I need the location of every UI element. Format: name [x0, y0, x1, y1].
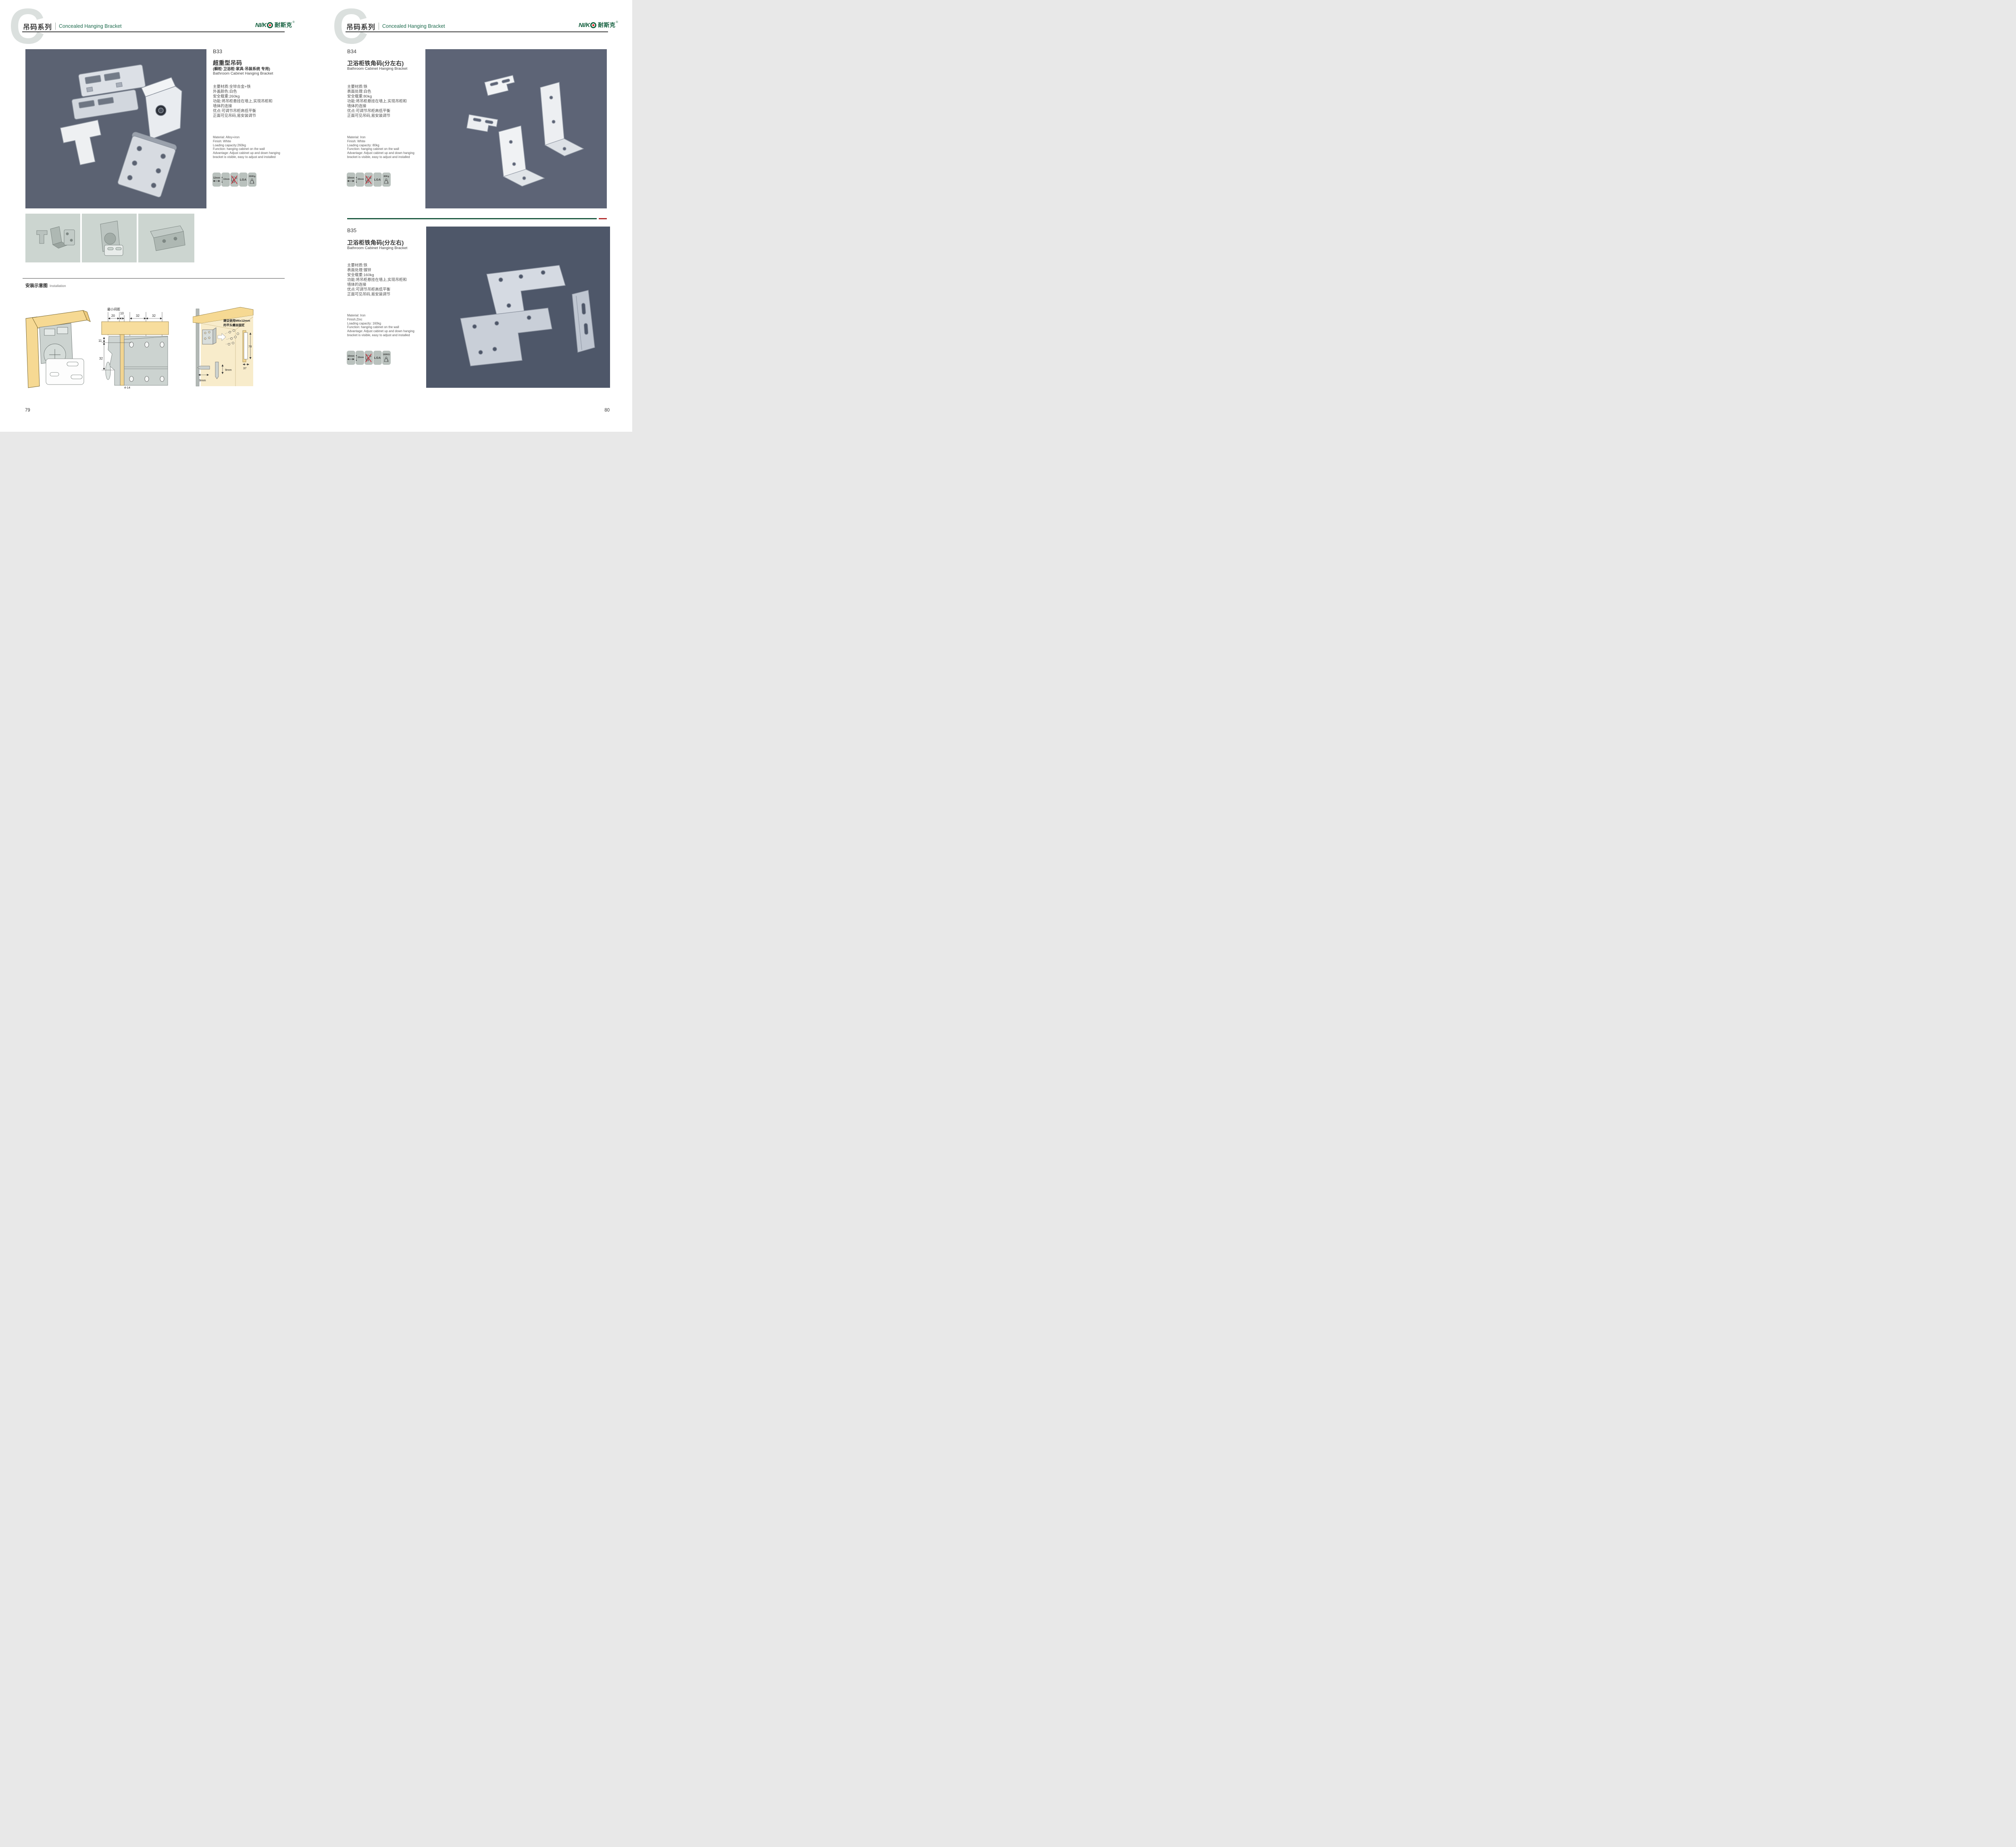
dim-4-14: 4-14 [124, 386, 130, 389]
installation-header: 安装示意图Installation [25, 282, 66, 289]
logo-red-dot-icon [269, 24, 271, 26]
product-photo-b35 [426, 227, 610, 388]
product-name-en-b35: Bathroom Cabinet Hanging Bracket [347, 246, 407, 250]
section-divider-green [347, 218, 597, 219]
dim-9mm-v: 9mm [225, 368, 232, 372]
brand-logo: NI/K 耐斯克 ® [255, 21, 295, 29]
logo-text-k: K [262, 22, 267, 29]
vertical-arrow-icon [221, 175, 223, 185]
installation-diagram-cabinet: 建议使用M6x12mm 的平头螺丝固定 [193, 306, 254, 391]
series-divider [55, 23, 56, 30]
logo-cn: 耐斯克 [598, 21, 616, 29]
header-rule [346, 31, 608, 32]
dim-20: 20 [111, 314, 115, 318]
horizontal-arrow-icon [213, 180, 220, 182]
h-range-icon: 12mm [212, 173, 221, 187]
series-title-en: Concealed Hanging Bracket [59, 23, 122, 29]
dim-11: 11 [98, 339, 102, 343]
thumbnail-2-b33 [82, 214, 137, 262]
product-photo-b33 [25, 49, 206, 208]
product-code-b35: B35 [347, 227, 356, 233]
installation-rule [23, 278, 285, 279]
page-number-right: 80 [602, 408, 610, 413]
logo-o-ring-icon [590, 22, 596, 28]
section-divider-red [599, 218, 607, 219]
note-screw-size: 建议使用M6x12mm [223, 318, 250, 322]
logo-o-ring-icon [267, 22, 273, 28]
product-code-b34: B34 [347, 48, 356, 54]
v-range-icon: 15mm [356, 351, 364, 365]
logo-text: NI [255, 22, 261, 29]
dim-78: 78 [248, 345, 252, 348]
no-drill-icon [230, 173, 239, 187]
feature-icons-b34: 10mm 15mm LGA 80Kg [347, 173, 391, 187]
series-title-cn: 吊码系列 [23, 21, 52, 31]
logo-red-dot-icon [592, 24, 594, 26]
feature-icons-b35: 10mm 15mm LGA 160KG [347, 351, 391, 365]
cert-icon: LGA [373, 351, 382, 365]
logo-text: NI [579, 22, 584, 29]
feature-icons-b33: 12mm 13mm LGA 260Kg [212, 173, 256, 187]
product-code-b33: B33 [213, 48, 222, 54]
weight-icon: 80Kg [382, 173, 391, 187]
specs-en-b33: Material: Alloy+iron Finish: White Loadi… [213, 135, 294, 159]
series-header: 吊码系列 Concealed Hanging Bracket [346, 21, 445, 31]
dim-32c: 32 [99, 357, 103, 360]
product-photo-b34 [425, 49, 607, 208]
logo-registered-mark: ® [293, 21, 295, 24]
specs-cn-b35: 主要材质:铁 表面处理:镀锌 安全载重:160kg 功能:将吊柜悬挂在墙上,实现… [347, 263, 428, 297]
brand-logo: NI/K 耐斯克 ® [579, 21, 618, 29]
thumbnail-3-b33 [138, 214, 194, 262]
weight-icon: 260Kg [248, 173, 256, 187]
dim-min-gap: 最小间距 [107, 308, 120, 311]
series-title-en: Concealed Hanging Bracket [382, 23, 445, 29]
h-range-icon: 10mm [347, 173, 355, 187]
specs-en-b35: Material: Iron Finish:Zinc Loading capac… [347, 314, 428, 337]
series-title-cn: 吊码系列 [346, 21, 375, 31]
series-header: 吊码系列 Concealed Hanging Bracket [23, 21, 122, 31]
series-divider [379, 23, 379, 30]
header-rule [22, 31, 285, 32]
b33-brackets-illustration [25, 49, 206, 208]
dim-37: 37 [243, 366, 246, 370]
logo-cn: 耐斯克 [275, 21, 292, 29]
cert-icon: LGA [373, 173, 382, 187]
note-screw-fix: 的平头螺丝固定 [223, 323, 245, 327]
installation-title-en: Installation [50, 284, 66, 288]
product-name-cn-b34: 卫浴柜铁角码(分左右) [347, 59, 404, 67]
dim-10: 10 [120, 312, 124, 315]
v-range-icon: 13mm [221, 173, 230, 187]
no-drill-icon [364, 173, 373, 187]
dim-9mm-h: 9mm [199, 379, 206, 382]
specs-en-b34: Material: Iron Finish: White Loading cap… [347, 135, 428, 159]
logo-registered-mark: ® [616, 21, 618, 24]
specs-cn-b34: 主要材质:铁 表面处理:白色 安全载重:80kg 功能:将吊柜悬挂在墙上,实现吊… [347, 85, 428, 119]
dim-32b: 32 [152, 314, 156, 318]
product-name-note-b33: (橱柜·卫浴柜·家具·吊装系统 专用) [213, 66, 270, 71]
product-name-cn-b35: 卫浴柜铁角码(分左右) [347, 239, 404, 247]
specs-cn-b33: 主要材质:全锌合金+铁 外盖颜色:白色 安全载重:260kg 功能:将吊柜悬挂在… [213, 85, 294, 119]
v-range-icon: 15mm [356, 173, 364, 187]
installation-diagram-corner [23, 306, 93, 391]
dim-32a: 32 [136, 314, 140, 318]
h-range-icon: 10mm [347, 351, 355, 365]
cert-icon: LGA [239, 173, 248, 187]
product-name-en-b33: Bathroom Cabinet Hanging Bracket [213, 71, 273, 76]
no-drill-icon [364, 351, 373, 365]
logo-text-k: K [586, 22, 590, 29]
product-name-en-b34: Bathroom Cabinet Hanging Bracket [347, 67, 407, 71]
installation-title-cn: 安装示意图 [25, 283, 48, 288]
installation-diagram-section: 最小间距 20 10 32 32 [96, 306, 171, 391]
page-number-left: 79 [25, 408, 30, 413]
weight-icon: 160KG [382, 351, 391, 365]
thumbnail-1-b33 [25, 214, 80, 262]
catalog-spread: C 吊码系列 Concealed Hanging Bracket NI/K 耐斯… [0, 0, 632, 432]
